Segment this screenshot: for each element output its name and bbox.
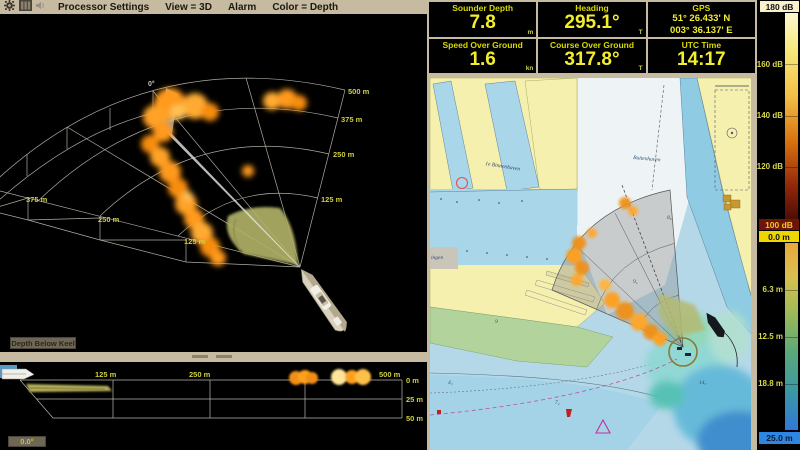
heading-box[interactable]: Heading 295.1° T (538, 2, 645, 37)
own-ship-3d-model (296, 266, 351, 336)
profile-distance-500: 500 m (379, 370, 401, 379)
depth-tick-12: 12.5 m (758, 332, 783, 341)
profile-ship-icon (0, 365, 34, 379)
heading-unit: T (639, 29, 643, 36)
surface-returns-profile (289, 369, 371, 385)
range-label-375-right: 375 m (341, 115, 363, 124)
db-scale-min-button[interactable]: 100 dB (759, 219, 799, 230)
chart-panel[interactable]: ingen (427, 75, 757, 450)
range-label-250-right: 250 m (333, 150, 355, 159)
gps-box[interactable]: GPS 51° 26.433' N 003° 36.137' E (648, 2, 755, 37)
seabed-return-patch (227, 207, 298, 265)
range-label-500-right: 500 m (348, 87, 370, 96)
depth-scale-min-button[interactable]: 0.0 m (759, 231, 799, 242)
sog-label: Speed Over Ground (443, 40, 523, 50)
range-label-375-left: 375 m (26, 195, 48, 204)
splitter-handle[interactable] (192, 355, 208, 358)
profile-depth-50: 50 m (406, 414, 423, 423)
tilt-angle-button[interactable]: 0.0° (8, 436, 46, 447)
db-tick-140: 140 dB (757, 111, 783, 120)
sonar-3d-view[interactable]: 0° 500 m 375 m 250 m 125 m 375 m 250 m 1… (0, 14, 427, 352)
gps-label: GPS (692, 3, 710, 13)
db-tick-160: 160 dB (757, 60, 783, 69)
depth-scale-max-button[interactable]: 25.0 m (759, 432, 800, 444)
profile-depth-25: 25 m (406, 395, 423, 404)
speed-over-ground-box[interactable]: Speed Over Ground 1.6 kn (429, 39, 536, 74)
menu-item-view[interactable]: View = 3D (165, 2, 212, 13)
menu-item-color[interactable]: Color = Depth (272, 2, 338, 13)
depth-tick-18: 18.8 m (758, 379, 783, 388)
depth-below-keel-button[interactable]: Depth Below Keel (10, 337, 76, 349)
db-tick-120: 120 dB (757, 162, 783, 171)
sog-unit: kn (526, 65, 534, 72)
utc-time-box[interactable]: UTC Time 14:17 (648, 39, 755, 74)
course-over-ground-box[interactable]: Course Over Ground 317.8° T (538, 39, 645, 74)
splitter-handle[interactable] (216, 355, 232, 358)
chart-town-label: ingen (431, 255, 443, 261)
menu-item-alarm[interactable]: Alarm (228, 2, 256, 13)
heading-value: 295.1° (564, 13, 619, 33)
utc-label: UTC Time (682, 40, 722, 50)
sounding-3: 7₂ (555, 400, 560, 406)
sonar-application-window: Processor Settings View = 3D Alarm Color… (0, 0, 800, 450)
sog-value: 1.6 (469, 50, 495, 70)
bearing-zero-label: 0° (148, 80, 155, 88)
sounding-6: 8₈ (667, 215, 672, 221)
cog-unit: T (639, 65, 643, 72)
gps-longitude: 003° 36.137' E (670, 25, 733, 37)
profile-distance-125: 125 m (95, 370, 117, 379)
instrument-panel: Sounder Depth 7.8 m Heading 295.1° T GPS… (427, 0, 757, 75)
range-label-250-left: 250 m (98, 215, 120, 224)
sounder-depth-value: 7.8 (469, 13, 495, 33)
profile-distance-250: 250 m (189, 370, 211, 379)
sounder-depth-box[interactable]: Sounder Depth 7.8 m (429, 2, 536, 37)
levels-icon[interactable] (19, 0, 32, 14)
gps-latitude: 51° 26.433' N (672, 13, 730, 25)
utc-value: 14:17 (677, 50, 726, 70)
cog-label: Course Over Ground (550, 40, 634, 50)
menu-bar: Processor Settings View = 3D Alarm Color… (0, 0, 427, 14)
settings-gear-icon[interactable] (4, 0, 15, 14)
db-scale-max-button[interactable]: 180 dB (760, 1, 799, 12)
depth-profile-view[interactable]: 125 m 250 m 500 m 0 m 25 m 50 m 0.0° (0, 362, 427, 450)
color-scales-column: 180 dB 160 dB 140 dB 120 dB 100 dB 0.0 m… (757, 0, 800, 450)
menu-item-processor-settings[interactable]: Processor Settings (58, 2, 149, 13)
profile-depth-0: 0 m (406, 376, 419, 385)
sounding-5: 9₂ (633, 279, 638, 285)
sounding-2: 4₃ (448, 379, 453, 386)
speaker-icon[interactable] (36, 1, 46, 13)
panel-splitter[interactable] (0, 352, 427, 362)
sounding-1: 9 (495, 319, 498, 325)
range-label-125-left: 125 m (184, 237, 206, 246)
range-label-125-right: 125 m (321, 195, 343, 204)
sounder-depth-unit: m (528, 29, 534, 36)
cog-value: 317.8° (564, 50, 619, 70)
depth-tick-6: 6.3 m (763, 285, 783, 294)
sounding-4: 14₃ (699, 379, 707, 386)
